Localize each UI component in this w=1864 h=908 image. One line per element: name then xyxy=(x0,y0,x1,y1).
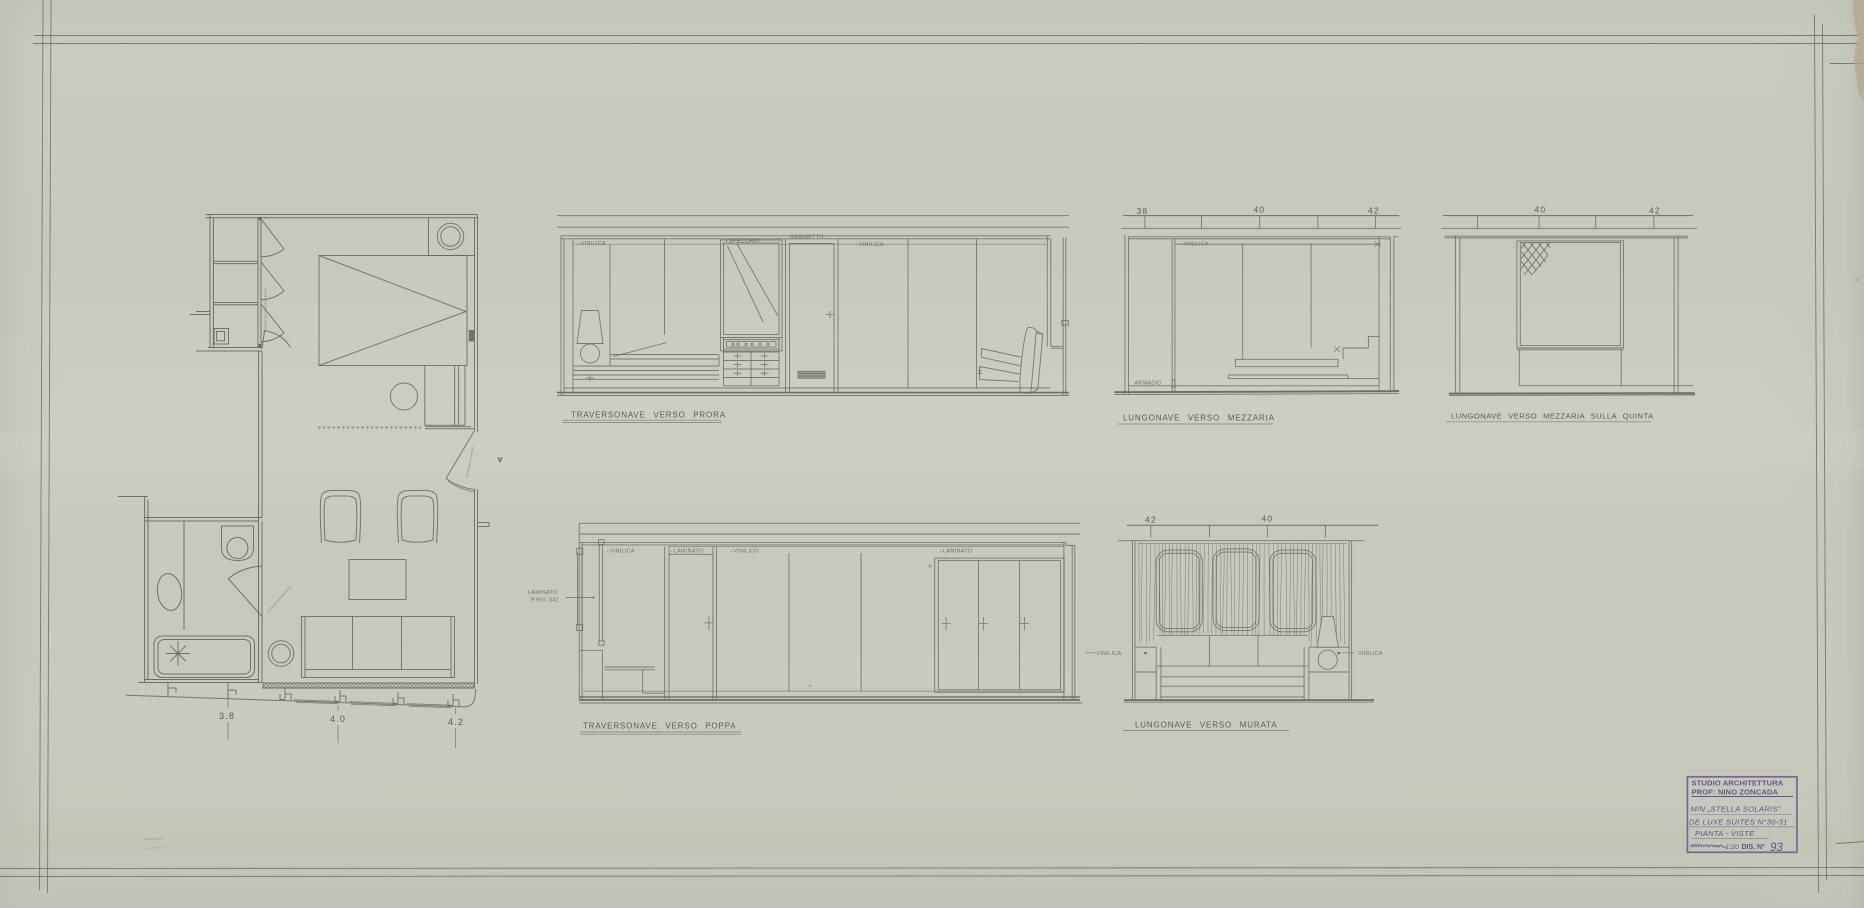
svg-text:‹ VINILICA: ‹ VINILICA xyxy=(578,241,606,247)
svg-text:‹ LAMINATO: ‹ LAMINATO xyxy=(671,549,703,555)
svg-text:M/N „STELLA SOLARIS“: M/N „STELLA SOLARIS“ xyxy=(1691,805,1781,814)
svg-text:‹ LAMINATO: ‹ LAMINATO xyxy=(940,549,972,555)
svg-text:v: v xyxy=(498,455,502,464)
svg-text:PIANTA - VISTE: PIANTA - VISTE xyxy=(1695,829,1755,838)
svg-text:1:20: 1:20 xyxy=(1726,844,1739,851)
svg-text:VINILICA: VINILICA xyxy=(1358,651,1383,657)
svg-text:ARMADIO: ARMADIO xyxy=(1134,381,1163,387)
svg-text:PROF: NINO ZONCADA: PROF: NINO ZONCADA xyxy=(1692,788,1779,797)
svg-text:42: 42 xyxy=(1368,206,1380,216)
svg-text:‹ SPECCHIO: ‹ SPECCHIO xyxy=(726,239,759,245)
svg-text:40: 40 xyxy=(1535,205,1547,215)
svg-text:‹ VINILICO: ‹ VINILICO xyxy=(731,549,759,555)
svg-text:40: 40 xyxy=(1262,514,1274,524)
svg-text:DE LUXE SUITES N°30-31: DE LUXE SUITES N°30-31 xyxy=(1689,818,1788,827)
svg-text:4.0: 4.0 xyxy=(330,714,346,724)
svg-text:LUNGONAVE VERSO MURATA: LUNGONAVE VERSO MURATA xyxy=(1135,721,1277,730)
svg-text:LUNGONAVE VERSO MEZZARIA: LUNGONAVE VERSO MEZZARIA xyxy=(1123,414,1275,423)
svg-text:LAMINATO: LAMINATO xyxy=(528,590,557,596)
svg-text:GABINETTO: GABINETTO xyxy=(790,235,824,241)
svg-text:VINILICA: VINILICA xyxy=(1097,651,1122,657)
svg-text:42: 42 xyxy=(1145,515,1157,525)
svg-text:LUNGONAVE VERSO MEZZARIA SULLA: LUNGONAVE VERSO MEZZARIA SULLA QUINTA xyxy=(1451,412,1654,421)
svg-text:38: 38 xyxy=(1137,206,1149,216)
svg-text:42: 42 xyxy=(1649,206,1661,216)
svg-text:4.2: 4.2 xyxy=(448,717,464,727)
svg-text:P.RIV. 042: P.RIV. 042 xyxy=(531,598,559,604)
svg-text:40: 40 xyxy=(1254,205,1266,215)
svg-text:STUDIO ARCHITETTURA: STUDIO ARCHITETTURA xyxy=(1692,779,1784,788)
svg-text:3.8: 3.8 xyxy=(219,711,235,721)
svg-text:‹ VINILICA: ‹ VINILICA xyxy=(856,242,884,248)
svg-text:93: 93 xyxy=(1770,842,1783,854)
svg-text:TRAVERSONAVE VERSO PRORA: TRAVERSONAVE VERSO PRORA xyxy=(571,411,726,420)
svg-text:TRAVERSONAVE VERSO POPPA: TRAVERSONAVE VERSO POPPA xyxy=(583,722,736,731)
svg-text:‹ VINILICA: ‹ VINILICA xyxy=(607,549,635,555)
svg-text:‹ VINILICA: ‹ VINILICA xyxy=(1181,242,1209,248)
svg-text:DIS. Nº: DIS. Nº xyxy=(1742,844,1766,851)
